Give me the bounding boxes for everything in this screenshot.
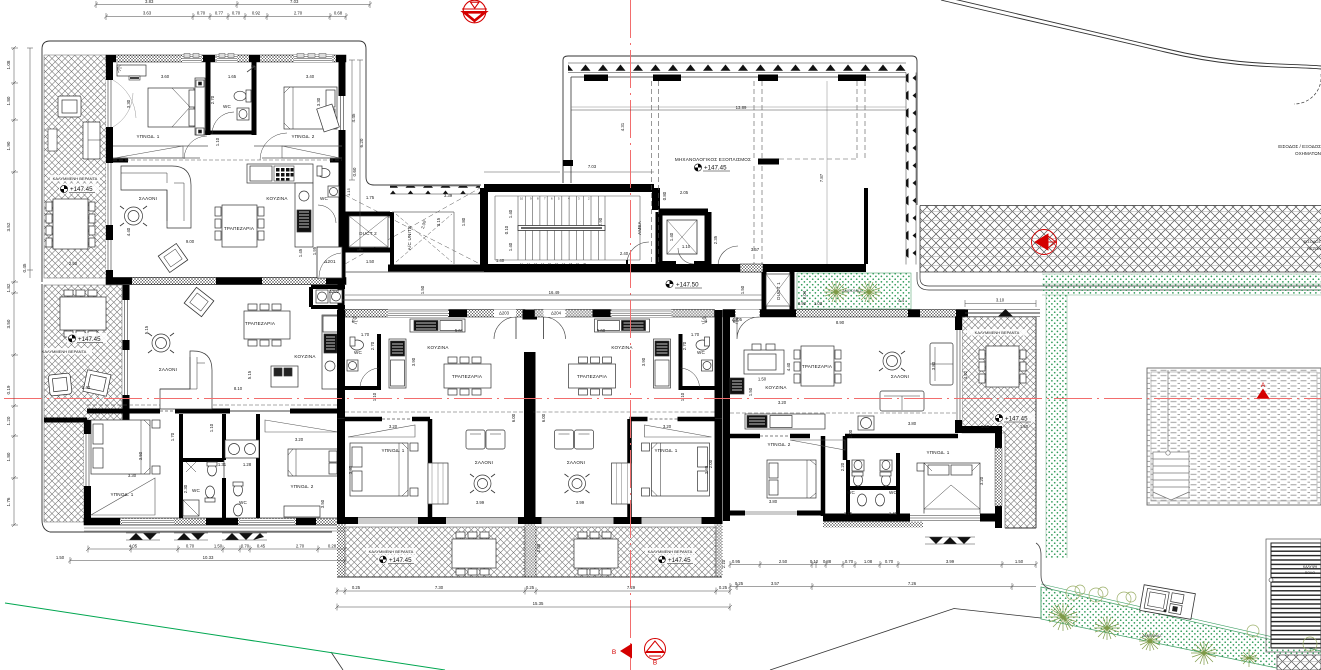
svg-text:3.30: 3.30 [128, 473, 137, 478]
svg-text:15.35: 15.35 [533, 601, 544, 606]
svg-text:1.28: 1.28 [243, 462, 252, 467]
svg-text:ΥΠΝΟΔ. 2: ΥΠΝΟΔ. 2 [292, 134, 315, 139]
svg-text:3.57: 3.57 [751, 247, 760, 252]
svg-text:0.19: 0.19 [6, 385, 11, 394]
svg-text:1.40: 1.40 [496, 258, 505, 263]
svg-text:0.70: 0.70 [885, 559, 894, 564]
svg-text:ΤΡΑΠΕΖΑΡΙΑ: ΤΡΑΠΕΖΑΡΙΑ [224, 226, 255, 231]
svg-text:2.20: 2.20 [840, 462, 845, 471]
svg-text:5.60: 5.60 [597, 328, 606, 333]
svg-text:7.26: 7.26 [908, 581, 917, 586]
svg-text:2.40: 2.40 [82, 385, 91, 390]
svg-text:3.20: 3.20 [295, 437, 304, 442]
svg-text:7.03: 7.03 [290, 0, 299, 4]
svg-text:ΣΑΛΟΝΙ: ΣΑΛΟΝΙ [159, 367, 177, 372]
svg-text:2.30: 2.30 [183, 484, 188, 493]
svg-text:3.63: 3.63 [143, 11, 152, 16]
svg-text:ΑΝΘΩΝΑΣ: ΑΝΘΩΝΑΣ [1142, 633, 1162, 638]
svg-text:9.00: 9.00 [186, 239, 195, 244]
svg-text:0.70: 0.70 [186, 543, 195, 548]
svg-text:7.03: 7.03 [588, 164, 597, 169]
svg-text:10.33: 10.33 [203, 555, 214, 560]
svg-text:2.00: 2.00 [536, 543, 541, 552]
svg-text:2.00: 2.00 [708, 459, 713, 468]
svg-text:0.92: 0.92 [798, 301, 807, 306]
svg-text:1.70: 1.70 [170, 432, 175, 441]
svg-text:0.70: 0.70 [197, 11, 206, 16]
svg-text:3.52: 3.52 [6, 222, 11, 231]
svg-text:ΤΡΑΠΕΖΑΡΙΑ: ΤΡΑΠΕΖΑΡΙΑ [802, 364, 833, 369]
svg-text:ΚΑΛΥΜΜΕΝΗ ΒΕΡΑΝΤΑ: ΚΑΛΥΜΜΕΝΗ ΒΕΡΑΝΤΑ [975, 330, 1020, 335]
svg-text:2.04: 2.04 [802, 290, 807, 299]
svg-text:2.70: 2.70 [682, 341, 687, 350]
svg-text:ΣΑΛΟΝΙ: ΣΑΛΟΝΙ [139, 196, 157, 201]
svg-text:7.30: 7.30 [435, 585, 444, 590]
svg-text:ΚΟΥΖΙΝΑ: ΚΟΥΖΙΝΑ [611, 345, 633, 350]
svg-text:+147.45: +147.45 [78, 336, 101, 343]
svg-text:1.15: 1.15 [346, 187, 351, 196]
svg-text:1.50: 1.50 [740, 285, 745, 294]
svg-text:5.61: 5.61 [455, 328, 464, 333]
svg-text:3.20: 3.20 [389, 424, 398, 429]
svg-text:ΤΡΑΠΕΖΑΡΙΑ: ΤΡΑΠΕΖΑΡΙΑ [577, 374, 608, 379]
svg-text:0.10: 0.10 [504, 225, 509, 234]
svg-text:6.00: 6.00 [541, 413, 546, 422]
svg-text:8.90: 8.90 [836, 320, 845, 325]
svg-text:7.29: 7.29 [627, 585, 636, 590]
svg-text:0.77: 0.77 [215, 11, 224, 16]
svg-text:6.00: 6.00 [511, 413, 516, 422]
svg-text:ΥΠΝΟΔ. 2: ΥΠΝΟΔ. 2 [291, 484, 314, 489]
svg-text:3.83: 3.83 [145, 0, 154, 4]
svg-text:0.95: 0.95 [732, 559, 741, 564]
svg-text:5.15: 5.15 [247, 370, 252, 379]
svg-text:1.82: 1.82 [6, 283, 11, 292]
svg-text:1.65: 1.65 [228, 74, 237, 79]
svg-text:5.15: 5.15 [144, 325, 149, 334]
svg-text:2.50: 2.50 [779, 559, 788, 564]
svg-text:10: 10 [520, 197, 524, 201]
svg-text:13.89: 13.89 [736, 105, 747, 110]
svg-text:1.75: 1.75 [366, 195, 375, 200]
svg-text:+147.45: +147.45 [389, 557, 412, 564]
svg-text:ΕΙΣΟΔΟΣ / ΕΞΟΔΟΣ: ΕΙΣΟΔΟΣ / ΕΞΟΔΟΣ [1278, 144, 1321, 149]
svg-text:1.10: 1.10 [209, 423, 214, 432]
svg-text:WC: WC [223, 104, 232, 109]
svg-text:1.10: 1.10 [680, 392, 685, 401]
svg-text:1.40: 1.40 [669, 232, 674, 241]
svg-text:ΥΠΝΟΔ. 1: ΥΠΝΟΔ. 1 [137, 134, 160, 139]
svg-text:Δ203: Δ203 [499, 311, 510, 316]
svg-text:3.40: 3.40 [306, 74, 315, 79]
svg-text:0.70: 0.70 [241, 543, 250, 548]
svg-text:3.80: 3.80 [908, 421, 917, 426]
svg-text:2.70: 2.70 [210, 95, 215, 104]
svg-text:2.40: 2.40 [620, 251, 629, 256]
svg-text:3.10: 3.10 [996, 298, 1005, 303]
svg-text:3.15: 3.15 [436, 217, 441, 226]
svg-text:4.4: 4.4 [898, 298, 905, 303]
svg-text:ΚΑΛΥΜΜΕΝΗ ΒΕΡΑΝΤΑ: ΚΑΛΥΜΜΕΝΗ ΒΕΡΑΝΤΑ [42, 349, 87, 354]
svg-text:1.90: 1.90 [6, 141, 11, 150]
svg-text:+147.50: +147.50 [676, 282, 699, 289]
svg-text:2.35: 2.35 [713, 235, 718, 244]
svg-text:2.10: 2.10 [721, 559, 726, 568]
svg-text:ΥΠΝΟΔ. 1: ΥΠΝΟΔ. 1 [382, 448, 405, 453]
svg-text:ΣΑΛΟΝΙ: ΣΑΛΟΝΙ [475, 460, 493, 465]
svg-text:0.25: 0.25 [719, 585, 728, 590]
svg-text:12: 12 [527, 262, 531, 266]
svg-text:WC: WC [192, 488, 201, 493]
svg-text:ΚΑΛΥΜΜΕΝΗ ΒΕΡΑΝΤΑ: ΚΑΛΥΜΜΕΝΗ ΒΕΡΑΝΤΑ [53, 176, 98, 181]
svg-text:+147.45: +147.45 [668, 557, 691, 564]
svg-text:1.76: 1.76 [6, 497, 11, 506]
svg-text:0.60: 0.60 [352, 167, 357, 176]
svg-text:ΚΑΛΥΜΜΕΝΗ ΒΕΡΑΝΤΑ: ΚΑΛΥΜΜΕΝΗ ΒΕΡΑΝΤΑ [369, 549, 414, 554]
svg-text:3.50: 3.50 [320, 499, 325, 508]
svg-text:Δ202: Δ202 [329, 289, 340, 294]
svg-text:ΤΡΑΠΕΖΑΡΙΑ: ΤΡΑΠΕΖΑΡΙΑ [245, 321, 276, 326]
svg-text:ΤΡΑΠΕΖΑΡΙΑ: ΤΡΑΠΕΖΑΡΙΑ [452, 374, 483, 379]
svg-text:DUCT 2: DUCT 2 [359, 231, 377, 236]
svg-text:+147.45: +147.45 [70, 186, 93, 193]
svg-text:16: 16 [555, 262, 559, 266]
svg-text:3.20: 3.20 [979, 476, 984, 485]
svg-text:4.40: 4.40 [786, 362, 791, 371]
svg-text:WC: WC [354, 350, 363, 355]
svg-text:1.50: 1.50 [366, 259, 375, 264]
svg-text:ΚΑΛΥΜΜΕΝΗ ΒΕΡΑΝΤΑ: ΚΑΛΥΜΜΕΝΗ ΒΕΡΑΝΤΑ [648, 549, 693, 554]
svg-text:2.70: 2.70 [296, 543, 305, 548]
svg-text:1.10: 1.10 [372, 392, 377, 401]
svg-text:3.60: 3.60 [161, 74, 170, 79]
svg-text:ΚΑΛΥΨΗ: ΚΑΛΥΨΗ [1303, 565, 1318, 569]
svg-text:0.45: 0.45 [22, 263, 27, 272]
svg-text:2.90: 2.90 [598, 217, 603, 226]
svg-text:2.70: 2.70 [294, 11, 303, 16]
svg-text:2.05: 2.05 [680, 190, 689, 195]
svg-text:3.99: 3.99 [946, 559, 955, 564]
svg-text:8.10: 8.10 [234, 386, 243, 391]
svg-text:15: 15 [548, 262, 552, 266]
svg-text:1.95: 1.95 [312, 246, 317, 255]
svg-text:A: A [1261, 382, 1266, 389]
svg-text:1.50: 1.50 [420, 285, 425, 294]
svg-text:1.10: 1.10 [682, 244, 691, 249]
svg-text:ΒΟΗΘ: ΒΟΗΘ [1305, 571, 1315, 575]
svg-text:1.80: 1.80 [6, 452, 11, 461]
svg-text:14: 14 [541, 262, 545, 266]
svg-text:1.10: 1.10 [215, 137, 220, 146]
svg-text:ΑΜΕΑ: ΑΜΕΑ [637, 220, 642, 235]
svg-text:Δ204: Δ204 [551, 311, 562, 316]
svg-text:7.87: 7.87 [819, 173, 824, 182]
svg-text:ΑΝΘΩΝΑΣ: ΑΝΘΩΝΑΣ [842, 288, 862, 293]
svg-text:0.25: 0.25 [526, 585, 535, 590]
svg-text:0.92: 0.92 [252, 11, 261, 16]
svg-text:3.80: 3.80 [931, 361, 936, 370]
svg-text:2.70: 2.70 [370, 341, 375, 350]
svg-text:3.20: 3.20 [663, 424, 672, 429]
svg-text:0.80: 0.80 [662, 191, 667, 200]
svg-text:WC: WC [320, 196, 329, 201]
svg-text:1.20: 1.20 [6, 416, 11, 425]
svg-text:ΚΟΥΖΙΝΑ: ΚΟΥΖΙΝΑ [765, 385, 787, 390]
svg-text:Δ201: Δ201 [324, 259, 336, 264]
svg-text:3.40: 3.40 [348, 465, 353, 474]
svg-text:3.50: 3.50 [6, 319, 11, 328]
svg-text:ΚΟΥΖΙΝΑ: ΚΟΥΖΙΝΑ [294, 354, 316, 359]
svg-text:1.60: 1.60 [981, 424, 990, 429]
svg-text:3.80: 3.80 [769, 499, 778, 504]
svg-text:3.99: 3.99 [476, 500, 485, 505]
svg-text:+147.45: +147.45 [704, 165, 727, 172]
svg-text:11: 11 [520, 262, 523, 266]
svg-text:0.25: 0.25 [735, 581, 744, 586]
svg-text:1.75: 1.75 [844, 511, 853, 516]
svg-text:ΣΑΛΟΝΙ: ΣΑΛΟΝΙ [891, 374, 909, 379]
svg-text:3.39: 3.39 [444, 193, 453, 198]
svg-text:13: 13 [534, 262, 538, 266]
svg-text:4.31: 4.31 [620, 122, 625, 131]
svg-text:ΕΙΣΟΔΟΣ: ΕΙΣΟΔΟΣ [1304, 239, 1321, 244]
svg-text:1.03: 1.03 [814, 301, 823, 306]
svg-text:ΥΠΝΟΔ. 1: ΥΠΝΟΔ. 1 [111, 492, 134, 497]
svg-text:WC: WC [889, 490, 898, 495]
svg-text:1.80: 1.80 [461, 217, 466, 226]
svg-text:1.08: 1.08 [6, 60, 11, 69]
svg-text:0.70: 0.70 [232, 11, 241, 16]
svg-text:+147.45: +147.45 [1005, 416, 1028, 423]
svg-text:4.92: 4.92 [963, 370, 968, 379]
svg-text:1.50: 1.50 [1015, 559, 1024, 564]
svg-text:0.45: 0.45 [257, 543, 266, 548]
svg-text:1.00: 1.00 [848, 429, 853, 438]
svg-text:3.50: 3.50 [138, 451, 143, 460]
svg-text:B: B [612, 649, 616, 656]
svg-text:1.08: 1.08 [864, 559, 873, 564]
svg-text:3.90: 3.90 [641, 357, 646, 366]
svg-text:1.50: 1.50 [758, 377, 767, 382]
svg-text:3.30: 3.30 [316, 97, 321, 106]
svg-text:3.30: 3.30 [126, 99, 131, 108]
svg-text:1.45: 1.45 [298, 248, 303, 257]
svg-text:0.12: 0.12 [810, 559, 819, 564]
svg-text:0.88: 0.88 [823, 559, 832, 564]
svg-text:WC: WC [847, 490, 856, 495]
svg-text:1.40: 1.40 [508, 242, 513, 251]
svg-text:1.50: 1.50 [748, 387, 753, 396]
svg-text:1.50: 1.50 [214, 543, 223, 548]
svg-text:0.70: 0.70 [845, 559, 854, 564]
svg-text:3.20: 3.20 [778, 400, 787, 405]
svg-text:1.31: 1.31 [218, 462, 227, 467]
svg-text:ΚΟΥΖΙΝΑ: ΚΟΥΖΙΝΑ [266, 196, 288, 201]
svg-text:ΜΗΧΑΝΟΛΟΓΙΚΟΣ ΕΞΟΠΛΙΣΜΟΣ: ΜΗΧΑΝΟΛΟΓΙΚΟΣ ΕΞΟΠΛΙΣΜΟΣ [675, 157, 751, 162]
svg-text:3.57: 3.57 [771, 581, 780, 586]
svg-text:DUCT 1: DUCT 1 [776, 282, 781, 300]
svg-text:0.25: 0.25 [352, 585, 361, 590]
svg-text:1.40: 1.40 [508, 209, 513, 218]
svg-text:1.70: 1.70 [361, 332, 370, 337]
svg-text:ΠΕΖΩΝ: ΠΕΖΩΝ [1307, 246, 1321, 251]
svg-text:1.50: 1.50 [1020, 424, 1029, 429]
svg-text:6.20: 6.20 [359, 138, 364, 147]
svg-text:ΥΠΝΟΔ. 1: ΥΠΝΟΔ. 1 [655, 448, 678, 453]
svg-text:ΣΑΛΟΝΙ: ΣΑΛΟΝΙ [567, 460, 585, 465]
svg-text:3.99: 3.99 [576, 500, 585, 505]
svg-text:ΟΧΗΜΑΤΩΝ: ΟΧΗΜΑΤΩΝ [1295, 151, 1321, 156]
svg-text:2.50: 2.50 [69, 261, 78, 266]
svg-text:0.68: 0.68 [334, 11, 343, 16]
svg-text:0.28: 0.28 [328, 543, 337, 548]
svg-text:ΥΠΝΟΔ. 1: ΥΠΝΟΔ. 1 [927, 450, 950, 455]
svg-text:1.40: 1.40 [889, 511, 898, 516]
svg-text:4.45: 4.45 [351, 113, 356, 122]
svg-text:1.80: 1.80 [6, 96, 11, 105]
svg-text:4.40: 4.40 [126, 227, 131, 236]
svg-text:16.49: 16.49 [549, 290, 560, 295]
svg-text:ΥΠΝΟΔ. 2: ΥΠΝΟΔ. 2 [768, 442, 791, 447]
svg-text:ΚΟΥΖΙΝΑ: ΚΟΥΖΙΝΑ [427, 345, 449, 350]
svg-text:WC: WC [239, 500, 248, 505]
svg-text:WC: WC [697, 350, 706, 355]
svg-text:B: B [653, 660, 657, 667]
svg-text:4.05: 4.05 [129, 543, 138, 548]
svg-text:1.70: 1.70 [691, 332, 700, 337]
svg-text:1.50: 1.50 [56, 555, 65, 560]
svg-text:3.90: 3.90 [411, 357, 416, 366]
svg-text:A/C UNITS: A/C UNITS [407, 226, 412, 251]
